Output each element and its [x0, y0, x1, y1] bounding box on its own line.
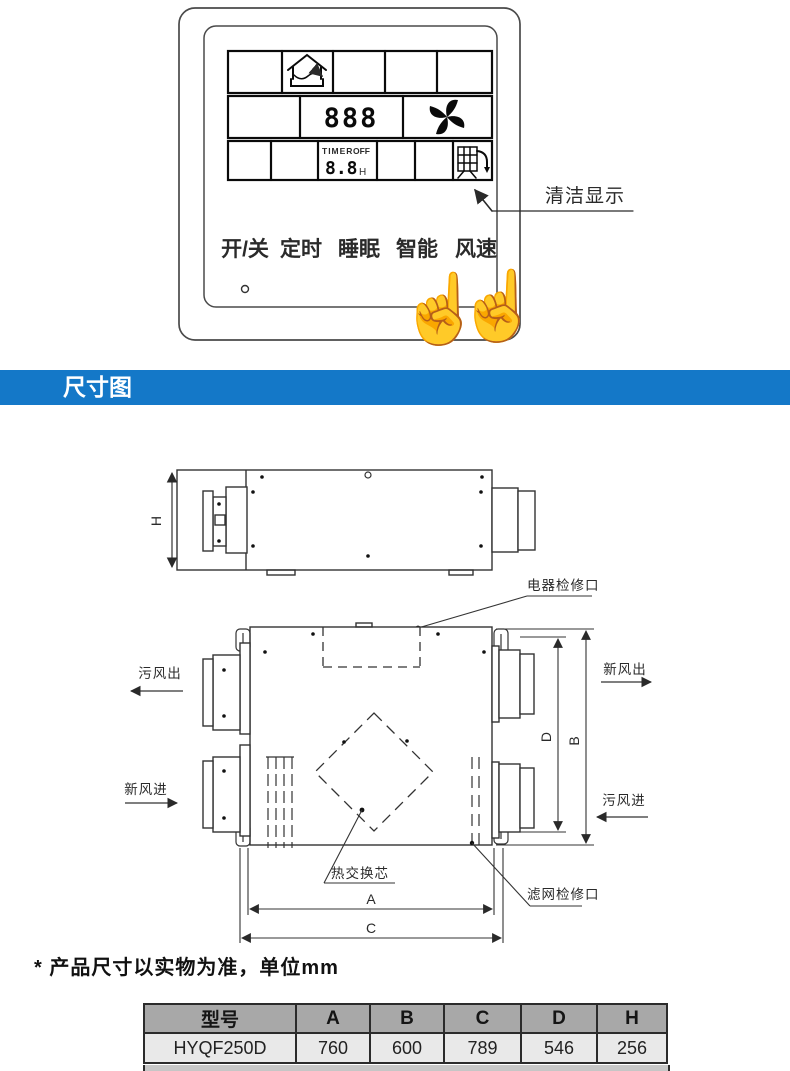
filter-access-callout: 滤网检修口 — [470, 841, 600, 906]
dirty-air-in-label: 污风进 — [602, 793, 646, 808]
spec-table: 型号 A B C D H HYQF250D 760 600 789 546 25… — [143, 1003, 668, 1064]
section-title: 尺寸图 — [0, 370, 790, 405]
table-next-row-clip — [143, 1065, 670, 1071]
fresh-air-in-label: 新风进 — [124, 782, 168, 797]
top-view-drawing: 污风出 新风进 新风出 污风进 D B A C — [124, 623, 651, 943]
cell-b: 600 — [370, 1033, 444, 1063]
cell-c: 789 — [444, 1033, 521, 1063]
pointing-hand-icon: ☝ — [456, 265, 541, 346]
dim-c-label: C — [366, 920, 376, 936]
col-h: H — [597, 1004, 667, 1033]
button-sleep: 睡眠 — [338, 238, 380, 261]
section-banner: 尺寸图 — [0, 370, 790, 405]
bottom-right-duct — [492, 762, 534, 838]
spec-table-header-row: 型号 A B C D H — [144, 1004, 667, 1033]
filter-access-label: 滤网检修口 — [527, 887, 600, 902]
heat-core-label: 热交换芯 — [331, 865, 389, 881]
top-view-body — [250, 627, 492, 845]
dirty-air-out-label: 污风出 — [138, 666, 182, 681]
button-fan-speed: 风速 — [455, 238, 497, 261]
dimension-h: H — [148, 473, 172, 567]
col-a: A — [296, 1004, 370, 1033]
line-art: 888 TIMER OFF 8.8 H 清洁显示 — [0, 0, 790, 1071]
cell-d: 546 — [521, 1033, 597, 1063]
bottom-left-duct — [203, 745, 250, 836]
dim-d-label: D — [538, 732, 554, 742]
timer-off-label: OFF — [353, 146, 370, 156]
side-left-duct — [203, 487, 247, 553]
timer-unit: H — [359, 167, 366, 178]
top-right-duct — [492, 646, 534, 722]
top-left-duct — [203, 643, 250, 734]
col-d: D — [521, 1004, 597, 1033]
indicator-led — [242, 286, 249, 293]
col-b: B — [370, 1004, 444, 1033]
electric-access-callout: 电器检修口 — [416, 578, 600, 630]
side-right-duct — [492, 488, 535, 552]
lcd-main-digits: 888 — [324, 103, 379, 134]
dim-h-label: H — [148, 516, 164, 526]
cell-model: HYQF250D — [144, 1033, 296, 1063]
fresh-air-out-label: 新风出 — [603, 662, 647, 677]
control-panel-diagram: 888 TIMER OFF 8.8 H 清洁显示 — [179, 8, 633, 349]
button-timer: 定时 — [280, 237, 322, 261]
cell-a: 760 — [296, 1033, 370, 1063]
dim-b-label: B — [566, 736, 582, 745]
timer-digits: 8.8 — [325, 158, 358, 179]
side-view-drawing: H 电器检修口 — [148, 470, 600, 630]
panel-buttons: 开/关 定时 睡眠 智能 风速 — [221, 237, 497, 261]
spec-table-data-row: HYQF250D 760 600 789 546 256 — [144, 1033, 667, 1063]
product-manual-page: 888 TIMER OFF 8.8 H 清洁显示 — [0, 0, 790, 1071]
timer-label: TIMER — [322, 146, 353, 156]
dimension-a: A — [248, 848, 494, 915]
col-model: 型号 — [144, 1004, 296, 1033]
button-power: 开/关 — [221, 237, 269, 261]
dim-a-label: A — [366, 891, 376, 907]
button-smart: 智能 — [396, 237, 438, 261]
cell-h: 256 — [597, 1033, 667, 1063]
dimension-note: * 产品尺寸以实物为准，单位mm — [34, 951, 339, 980]
electric-access-label: 电器检修口 — [527, 578, 600, 593]
clean-display-label: 清洁显示 — [545, 185, 625, 207]
col-c: C — [444, 1004, 521, 1033]
